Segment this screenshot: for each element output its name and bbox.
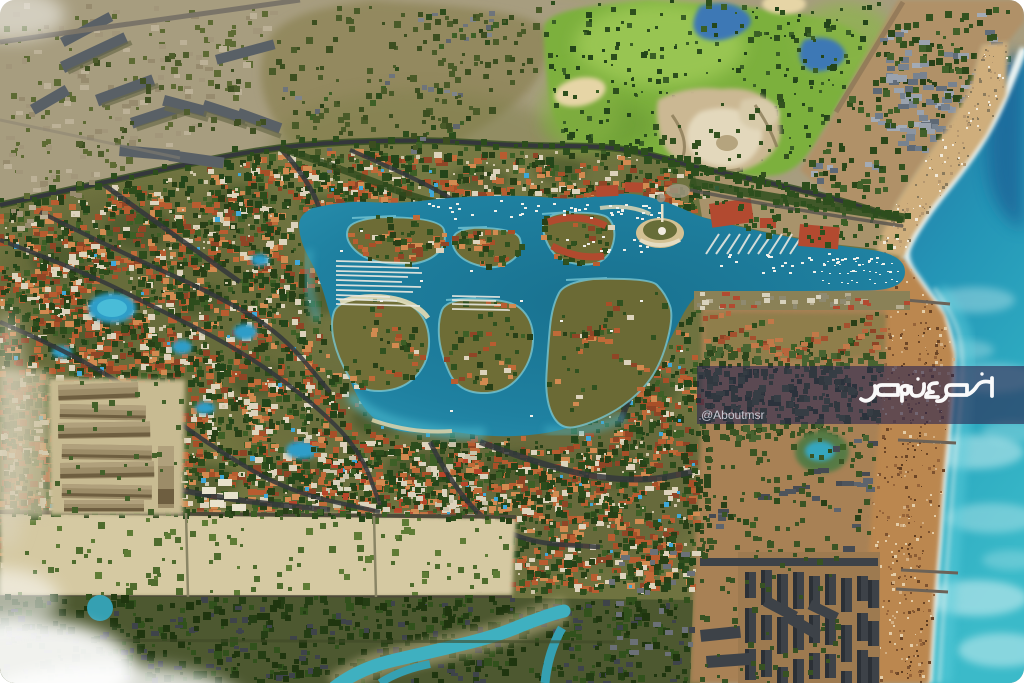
svg-text:@Aboutmsr: @Aboutmsr bbox=[701, 408, 765, 422]
